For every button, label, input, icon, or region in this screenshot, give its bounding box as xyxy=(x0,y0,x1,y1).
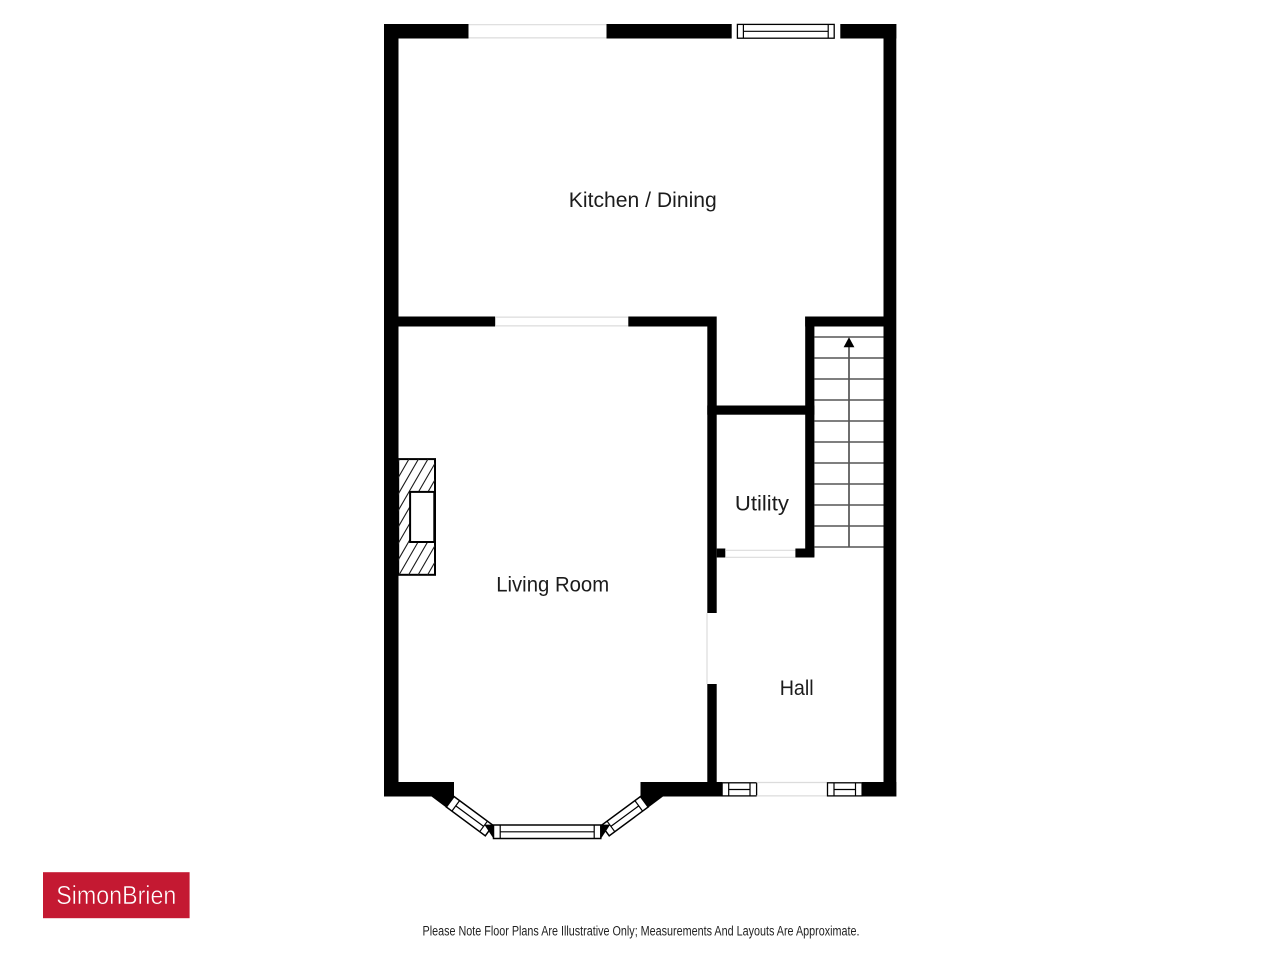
svg-text:Hall: Hall xyxy=(780,677,814,700)
svg-text:Utility: Utility xyxy=(735,493,790,516)
svg-text:Kitchen / Dining: Kitchen / Dining xyxy=(569,189,717,212)
svg-text:Living Room: Living Room xyxy=(496,574,609,597)
svg-text:Please Note Floor Plans Are Il: Please Note Floor Plans Are Illustrative… xyxy=(423,924,860,939)
svg-text:SimonBrien: SimonBrien xyxy=(56,880,176,910)
